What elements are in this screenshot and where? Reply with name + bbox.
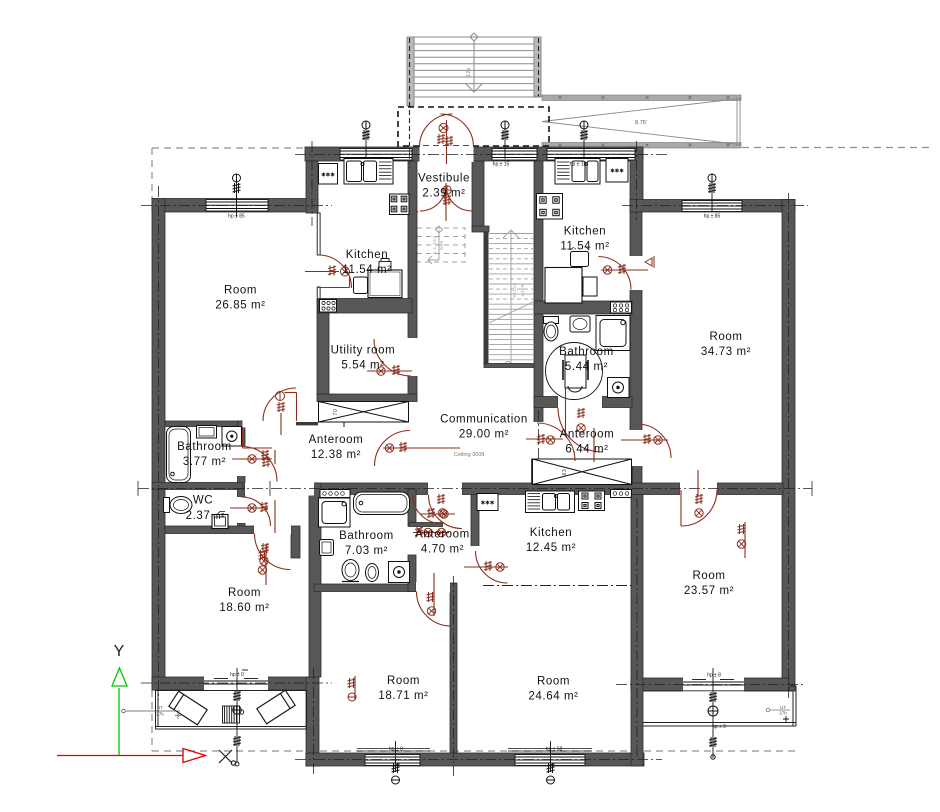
svg-text:11.54 m²: 11.54 m² — [342, 264, 391, 276]
svg-text:Kitchen: Kitchen — [530, 527, 573, 539]
svg-text:3.77 m²: 3.77 m² — [183, 456, 226, 468]
svg-text:Communication: Communication — [440, 414, 528, 426]
svg-text:hp ± 0: hp ± 0 — [389, 747, 403, 753]
svg-text:29.00 m²: 29.00 m² — [459, 429, 509, 441]
svg-text:23.57 m²: 23.57 m² — [684, 585, 734, 597]
svg-text:Bathroom: Bathroom — [559, 346, 614, 358]
svg-text:Kitchen: Kitchen — [346, 249, 389, 261]
svg-text:Ceiling 300lt: Ceiling 300lt — [454, 452, 485, 458]
svg-text:11.54 m²: 11.54 m² — [560, 241, 609, 253]
svg-text:8.75': 8.75' — [635, 120, 647, 126]
svg-text:Kitchen: Kitchen — [564, 226, 607, 238]
svg-text:Anteroom: Anteroom — [560, 429, 615, 441]
svg-text:5.44 m²: 5.44 m² — [565, 361, 608, 373]
svg-text:x300: x300 — [520, 284, 525, 296]
svg-text:Room: Room — [228, 587, 261, 599]
svg-text:✱✱✱: ✱✱✱ — [321, 172, 335, 179]
svg-text:34.73 m²: 34.73 m² — [701, 346, 751, 358]
svg-text:600: 600 — [439, 240, 444, 249]
svg-text:Vestibule: Vestibule — [418, 173, 470, 185]
svg-text:hp ± 8: hp ± 8 — [707, 673, 721, 679]
svg-text:27b: 27b — [156, 712, 164, 717]
svg-text:Y: Y — [114, 643, 125, 660]
svg-text:m²: m² — [213, 511, 225, 521]
svg-text:63: 63 — [562, 469, 568, 476]
svg-text:Bathroom: Bathroom — [339, 530, 394, 542]
svg-text:7.03 m²: 7.03 m² — [345, 545, 388, 557]
svg-text:✱✱✱: ✱✱✱ — [481, 500, 495, 507]
svg-text:WC: WC — [193, 495, 213, 507]
svg-text:18.71 m²: 18.71 m² — [378, 690, 428, 702]
svg-text:Room: Room — [387, 675, 420, 687]
svg-text:Anteroom: Anteroom — [309, 434, 364, 446]
svg-text:Bathroom: Bathroom — [177, 441, 232, 453]
svg-text:12x: 12x — [466, 67, 472, 77]
svg-text:Room: Room — [537, 676, 570, 688]
svg-text:5.54 m²: 5.54 m² — [341, 360, 384, 372]
svg-text:4.70 m²: 4.70 m² — [421, 544, 464, 556]
svg-text:12.38 m²: 12.38 m² — [311, 449, 361, 461]
svg-text:UT: UT — [780, 705, 786, 710]
svg-text:6.44 m²: 6.44 m² — [565, 444, 608, 456]
svg-text:✱✱✱: ✱✱✱ — [610, 168, 624, 175]
svg-text:hp ± 85: hp ± 85 — [704, 214, 721, 220]
svg-text:26.85 m²: 26.85 m² — [215, 300, 265, 312]
svg-text:9x152: 9x152 — [512, 282, 517, 297]
svg-text:hp ± 15: hp ± 15 — [570, 162, 587, 168]
svg-text:2.39 m²: 2.39 m² — [422, 188, 465, 200]
svg-text:hp ± 15: hp ± 15 — [493, 162, 510, 168]
svg-text:hp ± 58: hp ± 58 — [546, 747, 563, 753]
svg-text:Anteroom: Anteroom — [415, 529, 470, 541]
svg-text:27b: 27b — [779, 711, 787, 716]
svg-text:Utility room: Utility room — [331, 345, 396, 357]
svg-text:hp ± 9: hp ± 9 — [712, 724, 726, 730]
svg-text:18.60 m²: 18.60 m² — [219, 602, 269, 614]
svg-text:Room: Room — [692, 570, 725, 582]
svg-text:4 x 157: 4 x 157 — [432, 236, 437, 255]
svg-text:Room: Room — [224, 285, 257, 297]
svg-text:UT: UT — [157, 705, 163, 710]
svg-text:24.64 m²: 24.64 m² — [528, 691, 578, 703]
svg-text:12.45 m²: 12.45 m² — [526, 542, 576, 554]
svg-text:2.37: 2.37 — [186, 510, 211, 522]
svg-text:70: 70 — [333, 409, 339, 416]
svg-text:Room: Room — [709, 331, 742, 343]
